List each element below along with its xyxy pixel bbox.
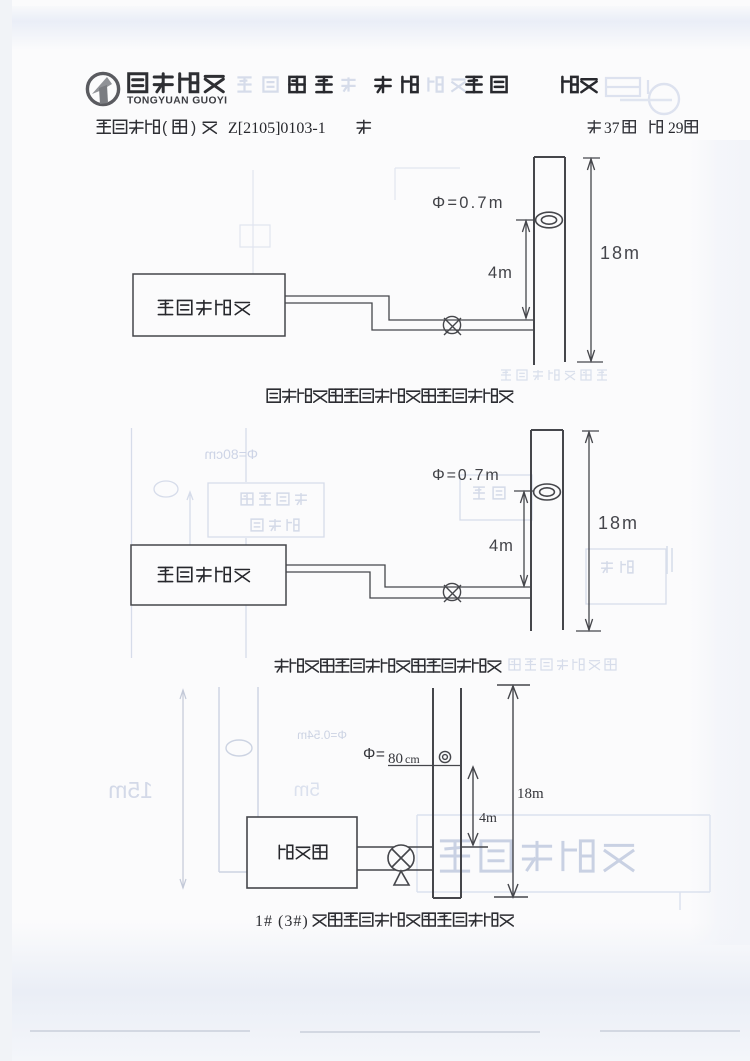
svg-text:5m: 5m bbox=[294, 780, 320, 801]
svg-text:TONGYUAN GUOYI: TONGYUAN GUOYI bbox=[127, 96, 227, 107]
svg-text:(: ( bbox=[162, 120, 168, 137]
svg-text:Φ=0.7m: Φ=0.7m bbox=[432, 467, 500, 484]
svg-text:37: 37 bbox=[604, 120, 620, 137]
svg-text:): ) bbox=[191, 120, 196, 137]
svg-text:29: 29 bbox=[668, 120, 684, 137]
svg-text:18m: 18m bbox=[517, 786, 544, 802]
svg-text:Φ=80cm: Φ=80cm bbox=[204, 446, 258, 462]
svg-text:cm: cm bbox=[405, 752, 420, 766]
svg-text:1# (3#): 1# (3#) bbox=[255, 913, 309, 930]
svg-text:4m: 4m bbox=[489, 537, 514, 555]
svg-text:Φ=0.54m: Φ=0.54m bbox=[297, 728, 347, 742]
svg-text:Z[2105]0103-1: Z[2105]0103-1 bbox=[228, 120, 326, 137]
svg-text:4m: 4m bbox=[479, 811, 497, 826]
svg-text:Φ=0.7m: Φ=0.7m bbox=[432, 194, 505, 212]
svg-text:18m: 18m bbox=[600, 243, 641, 263]
svg-text:18m: 18m bbox=[598, 513, 639, 533]
svg-text:Φ=: Φ= bbox=[363, 746, 385, 763]
svg-text:15m: 15m bbox=[108, 777, 153, 803]
svg-text:80: 80 bbox=[388, 751, 403, 767]
svg-text:4m: 4m bbox=[488, 264, 513, 282]
